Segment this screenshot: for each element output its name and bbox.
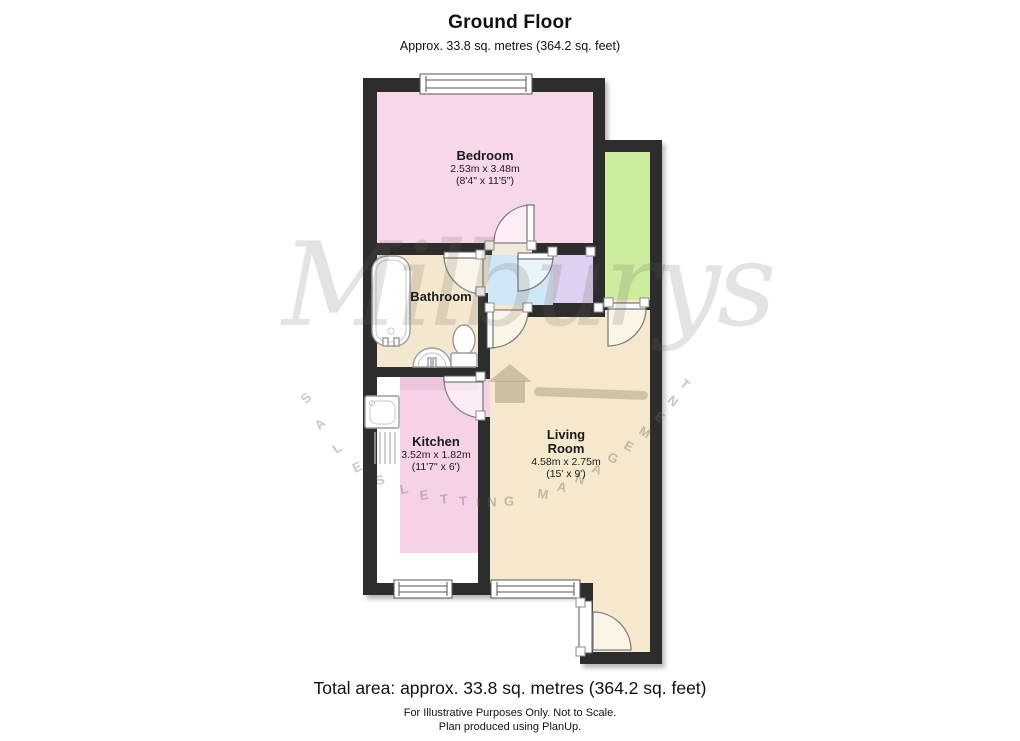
total-area-text: Total area: approx. 33.8 sq. metres (364… xyxy=(0,678,1020,699)
living-window xyxy=(491,580,580,598)
bedroom-dims-metric: 2.53m x 3.48m xyxy=(450,163,519,175)
living-dims-imperial: (15' x 9') xyxy=(531,468,600,480)
living-name-line2: Room xyxy=(531,442,600,456)
bedroom-name: Bedroom xyxy=(450,149,519,163)
bathroom-name: Bathroom xyxy=(410,290,471,304)
living-name-line1: Living xyxy=(531,428,600,442)
kitchen-dims-imperial: (11'7" x 6') xyxy=(401,461,470,473)
living-floor-neck xyxy=(593,583,650,595)
disclaimer-text: For Illustrative Purposes Only. Not to S… xyxy=(0,707,1020,720)
living-dims-metric: 4.58m x 2.75m xyxy=(531,456,600,468)
kitchen-window xyxy=(394,580,452,598)
floorplan-drawing xyxy=(0,0,1020,741)
cupboard-floor xyxy=(553,255,593,303)
bedroom-label: Bedroom 2.53m x 3.48m (8'4" x 11'5") xyxy=(450,149,519,187)
bathtub xyxy=(372,256,410,346)
living-room-label: Living Room 4.58m x 2.75m (15' x 9') xyxy=(531,428,600,480)
bedroom-dims-imperial: (8'4" x 11'5") xyxy=(450,175,519,187)
kitchen-label: Kitchen 3.52m x 1.82m (11'7" x 6') xyxy=(401,435,470,473)
toilet xyxy=(451,325,477,367)
floorplan-page: Ground Floor Approx. 33.8 sq. metres (36… xyxy=(0,0,1020,741)
bathroom-label: Bathroom xyxy=(410,290,471,304)
produced-by-text: Plan produced using PlanUp. xyxy=(0,721,1020,734)
kitchen-dims-metric: 3.52m x 1.82m xyxy=(401,449,470,461)
kitchen-name: Kitchen xyxy=(401,435,470,449)
store-floor xyxy=(605,152,650,300)
bedroom-window xyxy=(420,74,532,94)
